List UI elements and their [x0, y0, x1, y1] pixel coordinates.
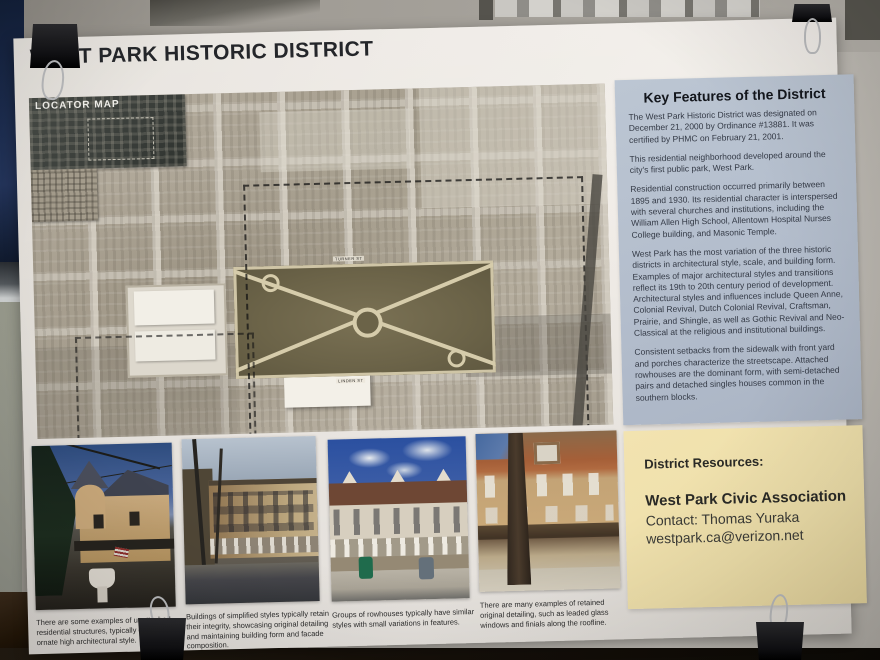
- key-features-paragraph: The West Park Historic District was desi…: [628, 107, 842, 146]
- photo-caption: There are many examples of retained orig…: [480, 597, 627, 630]
- street-label-turner: TURNER ST: [333, 256, 365, 262]
- photo-rowhouses-tree: [475, 430, 620, 592]
- binder-clip-handle: [804, 18, 821, 54]
- photo-caption: Groups of rowhouses typically have simil…: [332, 607, 478, 630]
- locator-boundary: [87, 117, 154, 161]
- key-features-paragraph: Consistent setbacks from the sidewalk wi…: [634, 342, 848, 404]
- map-light-block: [259, 109, 410, 173]
- binder-clip-body: [756, 622, 804, 660]
- resources-heading: District Resources:: [644, 454, 764, 472]
- resources-contact: Contact: Thomas Yuraka: [646, 509, 800, 529]
- photo-caption: Buildings of simplified styles typically…: [186, 609, 333, 652]
- binder-clip-top-right: [790, 2, 836, 62]
- window-row: [485, 472, 614, 497]
- district-boundary-dashed: [243, 176, 589, 439]
- resources-email: westpark.ca@verizon.net: [646, 527, 804, 547]
- locator-map-thumbnail: [31, 168, 98, 222]
- binder-clip-bottom-right: [752, 592, 808, 660]
- porch-columns: [210, 536, 318, 555]
- binder-clip-bottom-left: [134, 598, 190, 660]
- photo-brick-houses: [182, 436, 320, 604]
- district-boundary-dashed: [75, 333, 257, 440]
- key-features-panel: Key Features of the District The West Pa…: [615, 74, 863, 425]
- photo-victorian-house: [32, 443, 176, 610]
- street-label-linden: LINDEN ST: [336, 378, 366, 384]
- binder-clip-body: [138, 618, 186, 660]
- green-trash-can: [359, 557, 374, 579]
- wall-divider: [479, 0, 493, 20]
- window: [129, 511, 139, 525]
- aerial-map: TURNER ST LINDEN ST LOCATOR MAP: [29, 84, 613, 439]
- resources-organization: West Park Civic Association: [645, 488, 846, 510]
- sidewalk: [331, 568, 470, 601]
- window-grid: [333, 506, 464, 535]
- background-dark-corner: [845, 0, 880, 40]
- tree-branch: [44, 443, 161, 470]
- wall-left: [0, 302, 22, 592]
- window-grid: [213, 490, 314, 533]
- planter-urn: [89, 568, 115, 589]
- window: [93, 514, 103, 528]
- key-features-paragraph: West Park has the most variation of the …: [632, 244, 847, 340]
- background-photo-strip: [495, 0, 760, 17]
- map-building: [134, 290, 215, 326]
- poster-board: WEST PARK HISTORIC DISTRICT TURNER ST LI…: [13, 18, 851, 655]
- key-features-paragraph: This residential neighborhood developed …: [629, 148, 843, 176]
- photo-rowhouses-sky: [328, 436, 470, 601]
- binder-clip-top-left: [28, 20, 86, 112]
- window-row: [485, 504, 613, 523]
- porch-shadow: [478, 522, 619, 540]
- key-features-heading: Key Features of the District: [623, 84, 846, 106]
- sidewalk: [479, 566, 621, 592]
- dormer-window: [534, 442, 561, 465]
- key-features-paragraph: Residential construction occurred primar…: [630, 179, 844, 241]
- wall-shadow: [150, 0, 320, 26]
- evergreen-tree: [32, 445, 80, 596]
- district-resources-panel: District Resources: West Park Civic Asso…: [623, 425, 866, 609]
- street: [185, 562, 320, 604]
- gray-trash-can: [419, 557, 435, 579]
